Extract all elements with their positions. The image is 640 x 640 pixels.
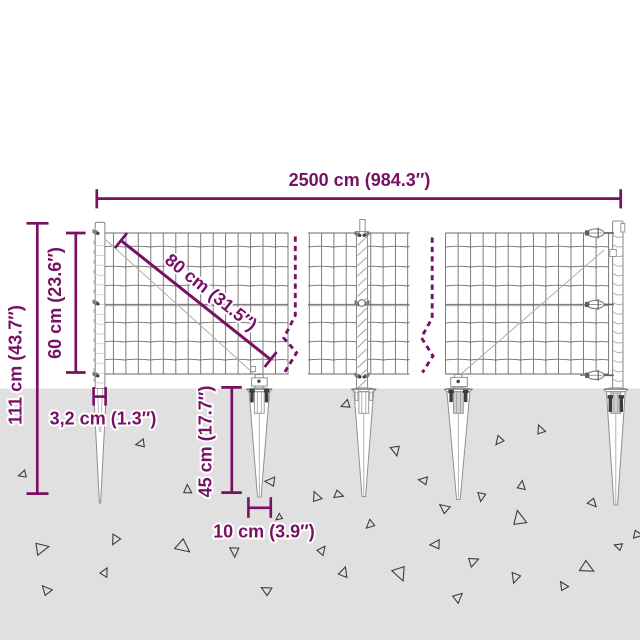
svg-text:60 cm (23.6″): 60 cm (23.6″) [45,247,65,359]
svg-text:111 cm (43.7″): 111 cm (43.7″) [6,305,26,425]
svg-text:3,2 cm (1.3″): 3,2 cm (1.3″) [50,409,157,429]
svg-text:2500 cm (984.3″): 2500 cm (984.3″) [289,170,431,190]
svg-text:45 cm (17.7″): 45 cm (17.7″) [195,386,215,498]
svg-text:10 cm (3.9″): 10 cm (3.9″) [213,522,315,542]
